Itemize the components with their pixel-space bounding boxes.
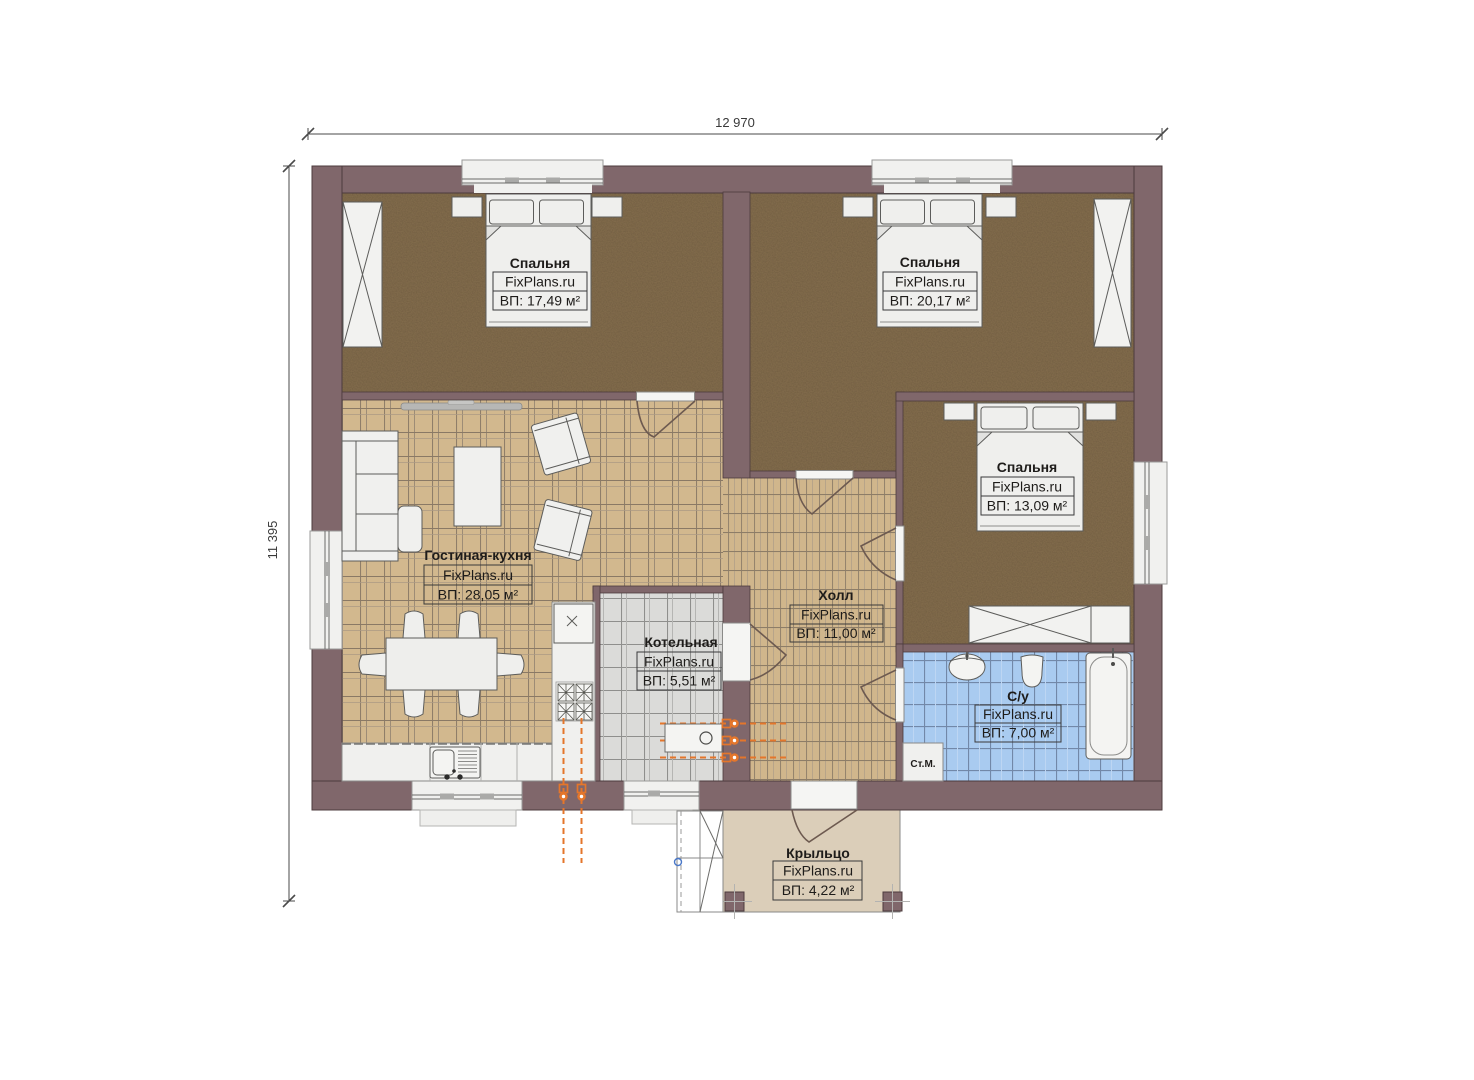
svg-text:Спальня: Спальня — [900, 254, 960, 270]
svg-text:11 395: 11 395 — [265, 521, 280, 560]
svg-text:FixPlans.ru: FixPlans.ru — [443, 567, 513, 583]
svg-text:12 970: 12 970 — [715, 115, 755, 130]
svg-text:FixPlans.ru: FixPlans.ru — [644, 654, 714, 670]
svg-text:FixPlans.ru: FixPlans.ru — [505, 274, 575, 290]
svg-text:Гостиная-кухня: Гостиная-кухня — [424, 547, 531, 563]
svg-text:Ст.М.: Ст.М. — [910, 759, 935, 770]
svg-text:ВП: 5,51 м²: ВП: 5,51 м² — [643, 673, 716, 689]
svg-text:FixPlans.ru: FixPlans.ru — [801, 607, 871, 623]
svg-text:FixPlans.ru: FixPlans.ru — [783, 863, 853, 879]
svg-text:FixPlans.ru: FixPlans.ru — [992, 479, 1062, 495]
svg-text:Холл: Холл — [818, 587, 853, 603]
svg-text:ВП: 13,09 м²: ВП: 13,09 м² — [987, 498, 1068, 514]
svg-text:FixPlans.ru: FixPlans.ru — [895, 274, 965, 290]
svg-text:С/у: С/у — [1007, 688, 1029, 704]
svg-text:Крыльцо: Крыльцо — [786, 845, 850, 861]
svg-text:ВП: 28,05 м²: ВП: 28,05 м² — [438, 587, 519, 603]
svg-text:ВП: 4,22 м²: ВП: 4,22 м² — [782, 882, 855, 898]
svg-text:ВП: 7,00 м²: ВП: 7,00 м² — [982, 725, 1055, 741]
svg-text:Спальня: Спальня — [510, 255, 570, 271]
svg-text:Котельная: Котельная — [644, 634, 717, 650]
svg-text:ВП: 17,49 м²: ВП: 17,49 м² — [500, 293, 581, 309]
svg-text:ВП: 11,00 м²: ВП: 11,00 м² — [796, 625, 876, 641]
svg-text:FixPlans.ru: FixPlans.ru — [983, 706, 1053, 722]
svg-text:ВП: 20,17 м²: ВП: 20,17 м² — [890, 293, 971, 309]
svg-text:Спальня: Спальня — [997, 459, 1057, 475]
